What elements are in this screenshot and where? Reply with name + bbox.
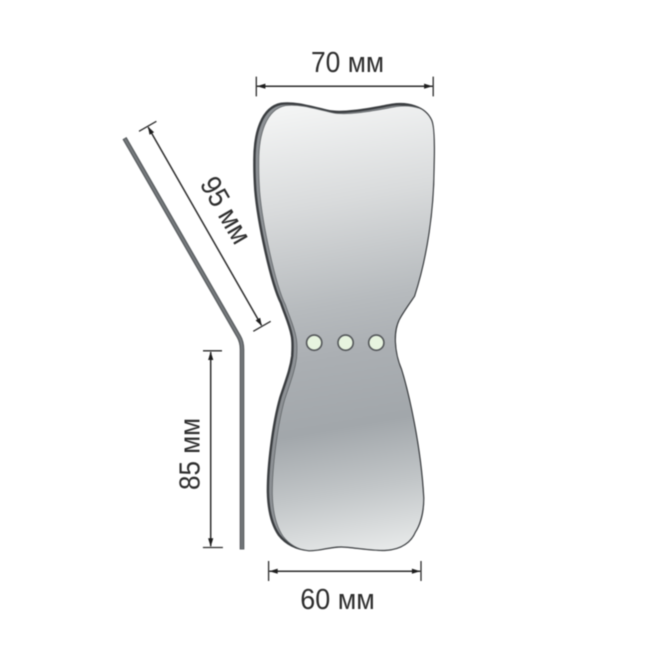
svg-text:85 мм: 85 мм <box>175 418 207 490</box>
svg-text:95 мм: 95 мм <box>193 171 257 249</box>
svg-text:70 мм: 70 мм <box>311 47 384 79</box>
svg-text:60 мм: 60 мм <box>300 584 375 616</box>
